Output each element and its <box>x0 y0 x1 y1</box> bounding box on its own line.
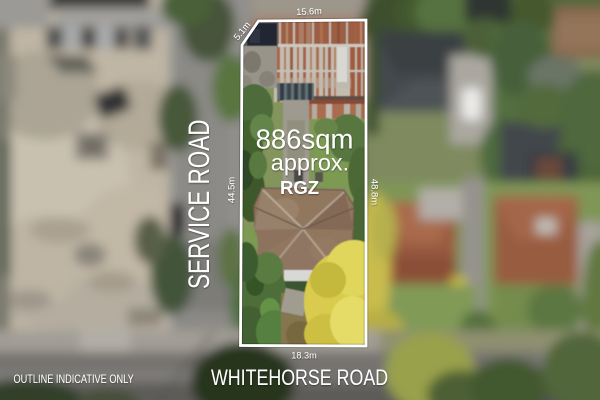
svg-text:RGZ: RGZ <box>280 177 319 198</box>
svg-text:18.3m: 18.3m <box>291 351 317 361</box>
svg-text:SERVICE ROAD: SERVICE ROAD <box>182 119 216 289</box>
svg-text:approx.: approx. <box>271 150 349 176</box>
svg-text:WHITEHORSE ROAD: WHITEHORSE ROAD <box>211 366 388 390</box>
svg-text:15.6m: 15.6m <box>296 6 322 17</box>
svg-text:44.5m: 44.5m <box>227 177 238 203</box>
svg-text:OUTLINE INDICATIVE ONLY: OUTLINE INDICATIVE ONLY <box>14 374 134 386</box>
svg-text:48.8m: 48.8m <box>368 179 379 205</box>
